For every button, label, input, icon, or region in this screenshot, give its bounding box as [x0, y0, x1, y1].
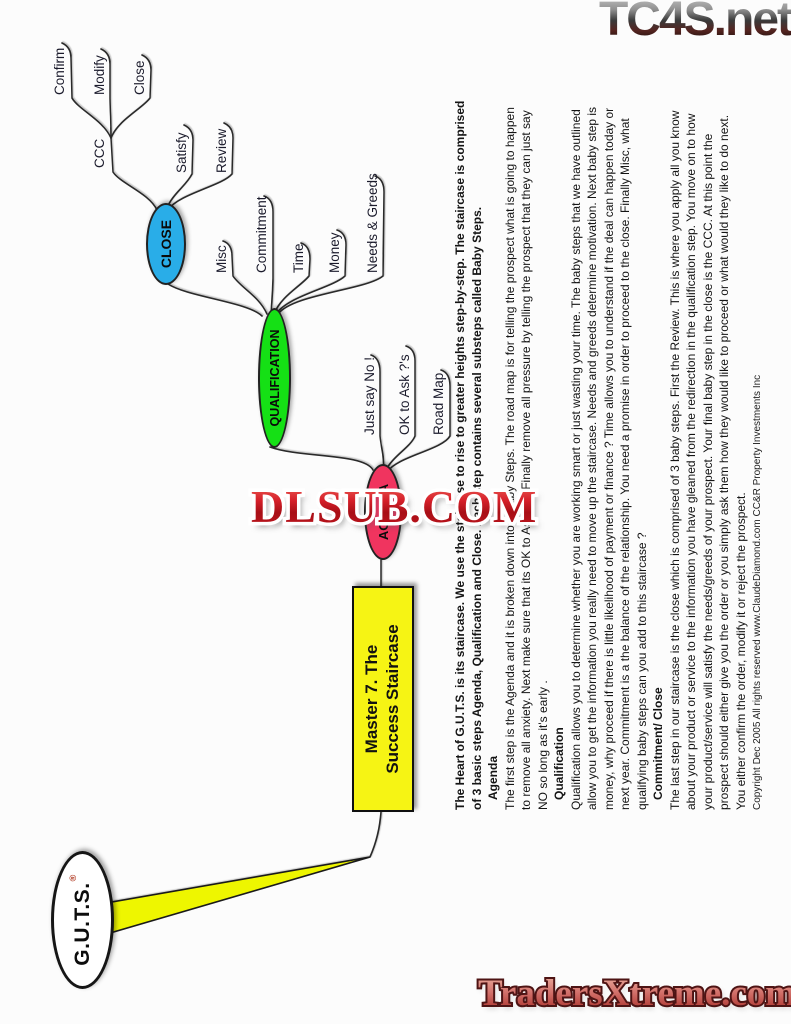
root-label: G.U.T.S.: [71, 882, 95, 965]
topic-qualification: QUALIFICATION: [258, 308, 291, 448]
article-line: next year. Commitment is a the balance o…: [617, 10, 634, 810]
article-line: allow you to get the information you rea…: [584, 10, 601, 810]
topic-close: CLOSE: [146, 203, 186, 285]
leaf-just-say-no: Just say No !: [362, 357, 377, 435]
leaf-satisfy: Satisfy: [174, 132, 189, 173]
article-line: qualifying baby steps can you add to thi…: [634, 10, 651, 810]
main-topic-box: Master 7. The Success Staircase: [352, 586, 414, 812]
article-line: your product/service will satisfy the ne…: [700, 10, 717, 810]
article-line: to remove all anxiety. Next make sure th…: [518, 10, 535, 810]
article-line: Qualification allows you to determine wh…: [568, 10, 585, 810]
beam-to-box-line: [370, 812, 381, 857]
main-topic-line2: Success Staircase: [383, 624, 404, 773]
leaf-road-map: Road Map: [431, 373, 446, 435]
article-line: You either confirm the order, modify it …: [733, 10, 750, 810]
root-node-guts: G.U.T.S.®: [51, 851, 114, 989]
watermark-tc4s: TC4S.net: [599, 0, 791, 47]
watermark-dlsub: DLSUB.COM DLSUB.COM: [251, 480, 537, 533]
article-line: of 3 basic steps Agenda, Qualification a…: [469, 10, 486, 810]
watermark-tradersxtreme: TradersXtreme.com TradersXtreme.com: [478, 972, 791, 1015]
leaf-modify: Modify: [92, 55, 107, 95]
watermark-tradersxtreme-fill: TradersXtreme.com: [478, 973, 791, 1014]
qualification-to-close-line: [168, 284, 262, 316]
leaf-close-sub: Close: [132, 60, 147, 95]
leaf-time: Time: [291, 244, 306, 274]
article-line: money, why proceed if there is little li…: [601, 10, 618, 810]
leaf-confirm: Confirm: [52, 48, 67, 95]
article-heading-agenda: Agenda: [485, 10, 502, 810]
registered-mark: ®: [68, 874, 78, 881]
article-line: The Heart of G.U.T.S. is its staircase. …: [452, 10, 469, 810]
branch-ccc: [111, 138, 157, 210]
article-line: about your product or service to the inf…: [683, 10, 700, 810]
leaf-money: Money: [327, 232, 342, 273]
leaf-review: Review: [214, 129, 229, 173]
copyright-line: Copyright Dec 2005 All rights reserved w…: [749, 10, 767, 810]
article-heading-qualification: Qualification: [551, 10, 568, 810]
article-line: The last step in our staircase is the cl…: [667, 10, 684, 810]
scanned-mindmap-page: G.U.T.S.® Master 7. The Success Staircas…: [0, 0, 791, 1024]
watermark-dlsub-fill: DLSUB.COM: [251, 481, 537, 532]
article-line: The first step is the Agenda and it is b…: [502, 10, 519, 810]
leaf-needs-greeds: Needs & Greeds: [365, 173, 380, 273]
article-text-block: The Heart of G.U.T.S. is its staircase. …: [452, 10, 767, 810]
article-heading-commitment-close: Commitment/ Close: [650, 10, 667, 810]
agenda-to-qualification-line: [270, 447, 373, 470]
article-line: NO so long as it's early .: [535, 10, 552, 810]
article-line: prospect should either give you the orde…: [716, 10, 733, 810]
node-ccc: CCC: [92, 139, 107, 168]
leaf-misc: Misc: [214, 245, 229, 273]
root-beam-shape: [93, 857, 370, 938]
main-topic-line1: Master 7. The: [362, 645, 383, 754]
leaf-commitment: Commitment: [254, 196, 269, 273]
leaf-ok-to-ask: OK to Ask ?'s: [397, 354, 412, 435]
